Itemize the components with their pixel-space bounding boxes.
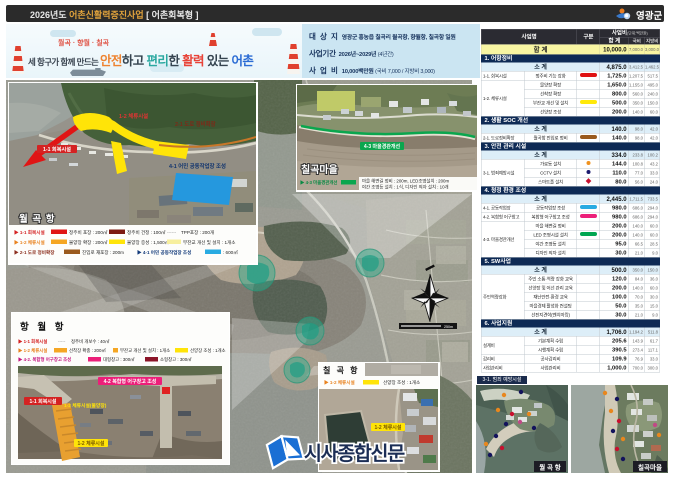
svg-text:2-1 도로 정비확장: 2-1 도로 정비확장	[175, 120, 216, 128]
svg-text:250m: 250m	[444, 325, 453, 329]
svg-text:▶ 1-2 체류시설: ▶ 1-2 체류시설	[14, 239, 45, 246]
svg-text:▶ 4-1 어민 공동작업장 조성: ▶ 4-1 어민 공동작업장 조성	[137, 249, 191, 256]
svg-text:소형창고 : 300㎡: 소형창고 : 300㎡	[160, 356, 192, 362]
svg-text:1-2 체류시설: 1-2 체류시설	[374, 424, 401, 431]
svg-text:4-2 복합형 어구창고 조성: 4-2 복합형 어구창고 조성	[104, 378, 157, 385]
svg-text:▶ 2-1 도로 정비확장: ▶ 2-1 도로 정비확장	[14, 249, 55, 256]
svg-text:부잔교 개선 및 설치 : 1개소: 부잔교 개선 및 설치 : 1개소	[120, 347, 170, 354]
svg-text:▶ 1-1 회복시설: ▶ 1-1 회복시설	[18, 338, 47, 345]
svg-text:마을 해변길 정비 : 200m, LED조명설치 : 2: 마을 해변길 정비 : 200m, LED조명설치 : 200m	[362, 178, 449, 185]
svg-text:영광군: 영광군	[636, 10, 662, 21]
svg-text:TPP포장 : 200개: TPP포장 : 200개	[181, 229, 214, 236]
svg-text:1-2 체류시설(물양장): 1-2 체류시설(물양장)	[64, 402, 107, 409]
svg-text:정주비 건정 : 100㎡: 정주비 건정 : 100㎡	[127, 229, 166, 236]
svg-text:물양장 증성 : 1,500㎡: 물양장 증성 : 1,500㎡	[127, 239, 170, 246]
svg-text:칠곡마을: 칠곡마을	[638, 463, 662, 472]
svg-text:선양장 조성 : 1개소: 선양장 조성 : 1개소	[190, 347, 226, 354]
svg-text:▶ 1-1 회복시설: ▶ 1-1 회복시설	[14, 229, 45, 236]
svg-text:1-2 체류시설: 1-2 체류시설	[77, 440, 104, 447]
svg-text:▶ 4-2. 복합형 어구창고 조성: ▶ 4-2. 복합형 어구창고 조성	[18, 356, 71, 363]
svg-text:야간 조명등 설치 : 1식, 디자인 의자 설치 : 1: 야간 조명등 설치 : 1식, 디자인 의자 설치 : 10개	[362, 184, 449, 191]
svg-text:진입로 재포장 : 200m: 진입로 재포장 : 200m	[82, 249, 124, 256]
svg-text:항 월 항: 항 월 항	[20, 321, 67, 333]
svg-text:1-2 체류시설: 1-2 체류시설	[119, 112, 148, 120]
svg-text:칠곡마을: 칠곡마을	[301, 163, 338, 176]
svg-text:선착장 확충 : 200㎡: 선착장 확충 : 200㎡	[69, 347, 106, 354]
svg-text:▶ 1-2 체류시설: ▶ 1-2 체류시설	[324, 379, 355, 386]
svg-text:1-1 회복시설: 1-1 회복시설	[29, 398, 56, 405]
svg-text:4-1 어민 공동작업장 조성: 4-1 어민 공동작업장 조성	[169, 162, 226, 170]
svg-text:월 곡 항: 월 곡 항	[539, 463, 561, 472]
svg-text:: 600㎡: : 600㎡	[223, 249, 238, 255]
svg-text:1-1 회복시설: 1-1 회복시설	[43, 145, 71, 153]
svg-text:▶ 4-3 마을경관개선: ▶ 4-3 마을경관개선	[300, 179, 337, 186]
svg-text:월 곡 항: 월 곡 항	[19, 213, 56, 225]
svg-text:대형창고 : 300㎡: 대형창고 : 300㎡	[103, 356, 135, 363]
svg-text:정주비 개보수 : 40㎡: 정주비 개보수 : 40㎡	[71, 338, 110, 345]
svg-text:------: ------	[167, 230, 177, 235]
svg-text:칠 곡 항: 칠 곡 항	[323, 365, 360, 375]
svg-text:부잔교 개선 및 설치 : 1개소: 부잔교 개선 및 설치 : 1개소	[183, 239, 235, 246]
svg-text:▶ 1-2 체류시설: ▶ 1-2 체류시설	[18, 347, 47, 354]
svg-text:-----: -----	[58, 339, 66, 344]
svg-text:시사종합신문: 시사종합신문	[304, 443, 405, 465]
svg-text:선양장 조성 : 1개소: 선양장 조성 : 1개소	[383, 379, 420, 386]
svg-text:물양장 확장 : 200㎡: 물양장 확장 : 200㎡	[69, 239, 108, 246]
svg-text:정주비 포장 : 200㎡: 정주비 포장 : 200㎡	[69, 229, 108, 236]
svg-text:4-3 마을경관개선: 4-3 마을경관개선	[364, 143, 401, 150]
